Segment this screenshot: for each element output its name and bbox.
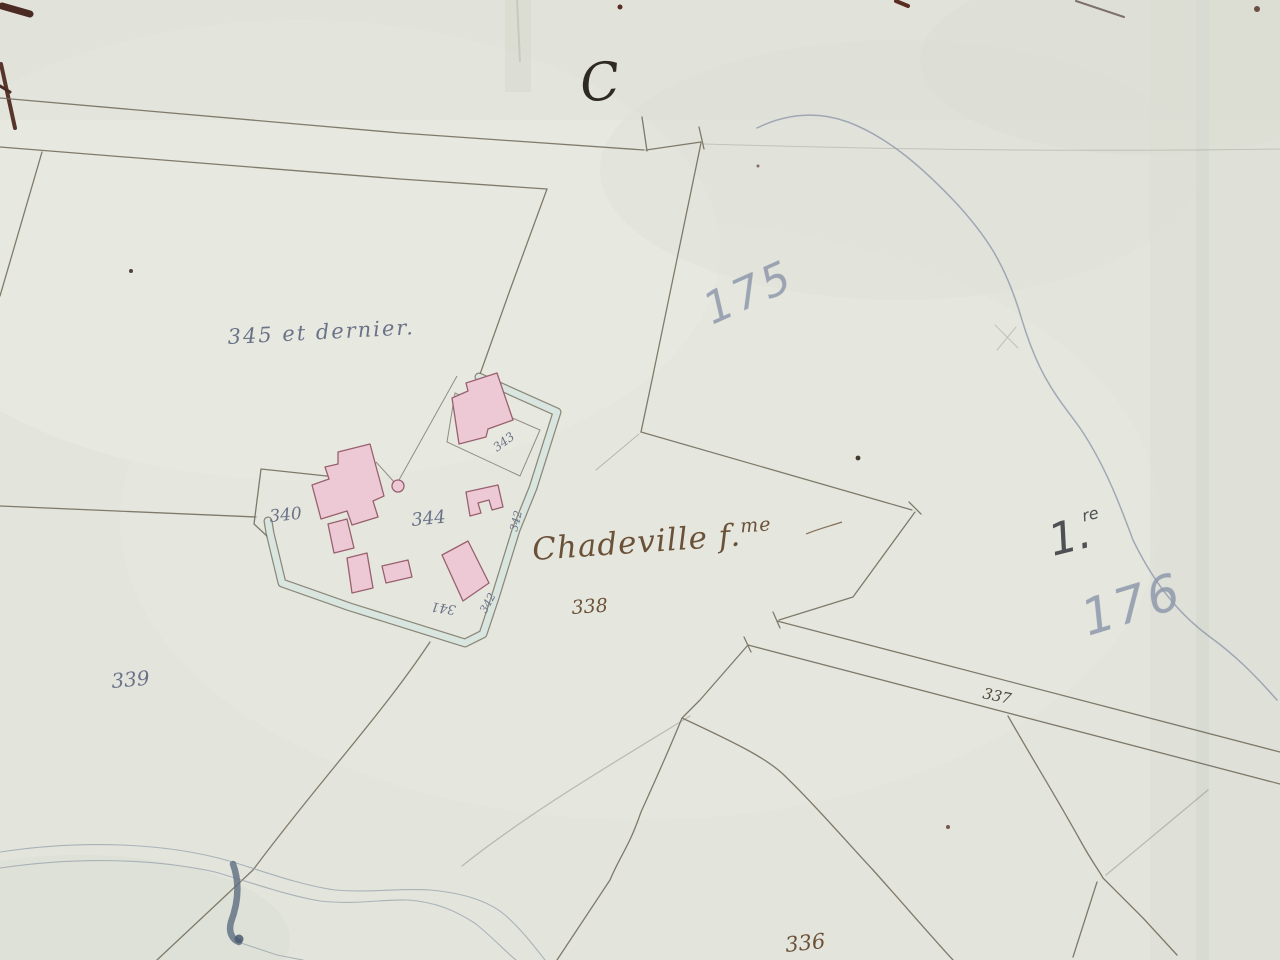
section-letter-C: C [577,51,623,115]
parcel-label-339: 339 [110,666,150,693]
round-feature-well [392,480,404,492]
parcel-label-336: 336 [784,929,826,957]
parcel-label-340: 340 [268,504,303,527]
parcel-label-338: 338 [571,595,609,619]
cadastral-map-scan: 345 et dernier. 340 344 343 341 342 342 … [0,0,1280,960]
stream-pool [235,935,244,944]
map-canvas: 345 et dernier. 340 344 343 341 342 342 … [0,0,1280,960]
parcel-label-344: 344 [410,506,446,530]
farm-name-superscript: me [739,513,772,537]
